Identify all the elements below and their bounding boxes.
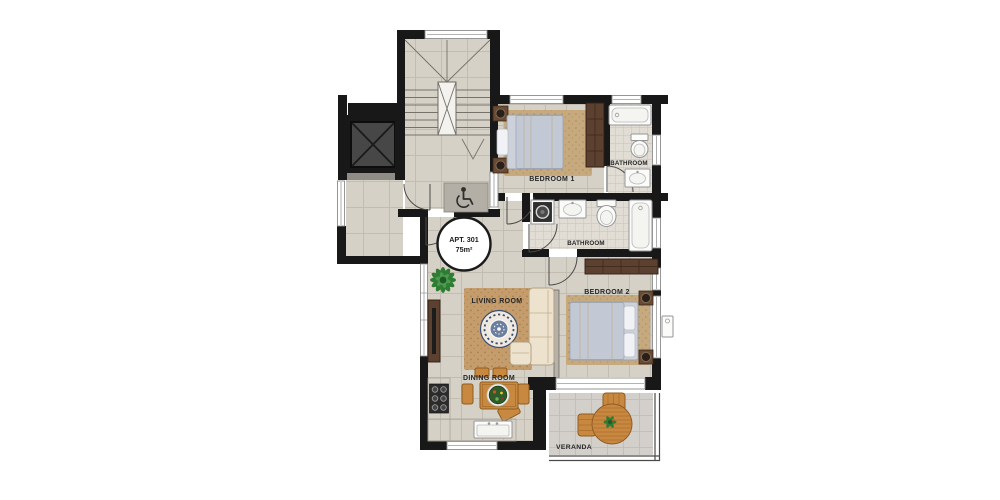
hallway-floor — [346, 180, 403, 256]
ac-unit — [662, 316, 673, 337]
chair — [518, 384, 529, 404]
room-label-bathroom1: BATHROOM — [610, 160, 648, 167]
outdoor-table — [592, 404, 632, 444]
room-label-veranda: VERANDA — [556, 444, 592, 451]
centerpiece — [487, 384, 509, 406]
washing-machine — [531, 200, 554, 224]
stove — [430, 384, 449, 413]
sink — [625, 169, 650, 187]
apartment-area: 75m² — [456, 245, 473, 254]
apartment-badge: APT. 301 75m² — [438, 218, 491, 271]
lamp-icon — [641, 352, 650, 361]
bathtub — [609, 105, 651, 125]
room-label-bedroom1: BEDROOM 1 — [529, 176, 575, 183]
room-label-bedroom2: BEDROOM 2 — [584, 289, 630, 296]
toilet — [597, 200, 616, 227]
tv-console — [428, 300, 440, 362]
lamp-icon — [496, 109, 505, 118]
lamp-icon — [641, 293, 650, 302]
apartment-number: APT. 301 — [449, 235, 479, 244]
sink — [559, 200, 586, 218]
room-label-dining: DINING ROOM — [463, 375, 515, 382]
chair — [462, 384, 473, 404]
rug-medallion — [481, 311, 518, 348]
lamp-icon — [496, 161, 505, 170]
floorplan-canvas: APT. 301 75m² BEDROOM 1 — [0, 0, 1000, 500]
corridor-strip-floor — [498, 201, 523, 217]
room-label-bathroom2: BATHROOM — [567, 240, 605, 247]
bed — [570, 302, 638, 360]
kitchen-sink — [474, 421, 512, 438]
bedroom-1: BEDROOM 1 — [493, 103, 604, 183]
apartment-floorplan: APT. 301 75m² BEDROOM 1 — [0, 0, 1000, 500]
entrance-lobby — [444, 183, 488, 212]
toilet — [631, 134, 648, 158]
room-label-living: LIVING ROOM — [472, 298, 523, 305]
bathtub — [629, 200, 652, 251]
bed — [497, 115, 563, 169]
elevator-sill — [346, 173, 403, 180]
